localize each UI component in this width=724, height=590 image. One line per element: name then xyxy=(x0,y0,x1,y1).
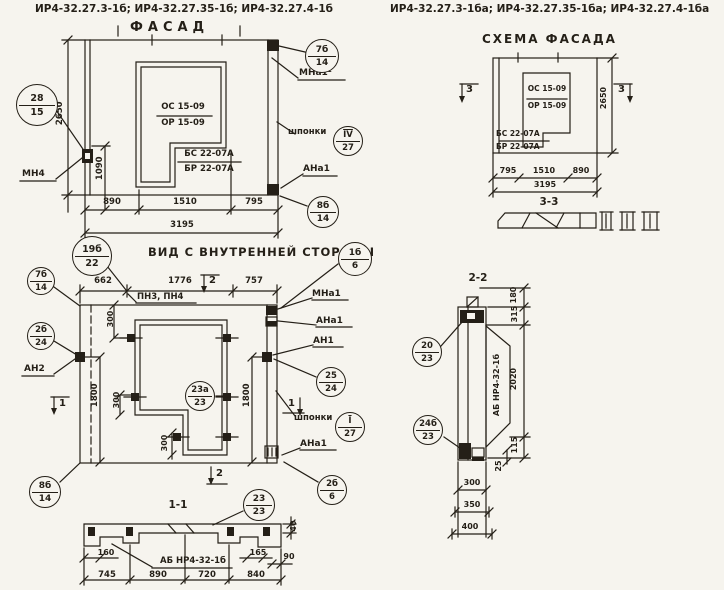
balloon-25-24: 25 24 xyxy=(316,367,346,397)
inner-label-shponki: шпонки xyxy=(294,414,332,423)
scheme-section-mark-right: 3 xyxy=(618,85,625,95)
facade-dim-795: 795 xyxy=(234,198,274,207)
balloon-top: 7б xyxy=(308,45,336,57)
inner-section-mark-1-right: 1 xyxy=(288,399,295,409)
section-1-1-label: АБ НР4-32-1б xyxy=(150,557,236,566)
balloon-bottom: 14 xyxy=(32,493,58,504)
facade-title: ФАСАД xyxy=(130,21,209,34)
section-1-1-title: 1-1 xyxy=(160,500,196,511)
balloon-top: 25 xyxy=(319,371,344,383)
s22-dim-400: 400 xyxy=(453,523,487,531)
balloon-top: 1б xyxy=(341,248,369,260)
facade-window-mark-bottom: ОР 15-09 xyxy=(152,119,214,128)
inner-dim-757: 757 xyxy=(236,277,272,286)
s11-dim-90: 90 xyxy=(278,553,300,561)
balloon-bottom: 23 xyxy=(246,506,272,517)
inner-dim-662: 662 xyxy=(85,277,121,286)
s11-dim-720: 720 xyxy=(192,571,222,580)
scheme-dim-890: 890 xyxy=(566,167,596,175)
scheme-dim-2650: 2650 xyxy=(600,80,608,116)
inner-label-ana1: АНа1 xyxy=(316,317,343,326)
balloon-top: 2б xyxy=(320,479,345,491)
s22-dim-315: 315 xyxy=(511,302,519,326)
scheme-window-mark-top: ОС 15-09 xyxy=(524,85,570,93)
s22-dim-2020: 2020 xyxy=(510,364,518,394)
s11-dim-40: 40 xyxy=(290,516,298,536)
facade-panel-mark-bottom: БР 22-07А xyxy=(176,165,242,174)
balloon-bottom: 14 xyxy=(308,57,336,68)
balloon-bottom: 24 xyxy=(319,383,344,394)
balloon-2b-6: 2б 6 xyxy=(317,475,347,505)
balloon-top: 19б xyxy=(75,244,108,257)
title-right: ИР4-32.27.3-1ба; ИР4-32.27.35-1ба; ИР4-3… xyxy=(390,4,709,15)
balloon-top: 2б xyxy=(30,325,53,337)
facade-panel-mark-top: БС 22-07А xyxy=(176,150,242,159)
balloon-top: 7б xyxy=(30,270,53,282)
scheme-panel-mark-bottom: БР 22-07А xyxy=(496,143,540,151)
inner-dim-1800-left: 1800 xyxy=(91,376,100,414)
balloon-top: 23а xyxy=(188,385,213,397)
inner-dim-300-mid: 300 xyxy=(113,385,121,415)
balloon-1b-6: 1б 6 xyxy=(338,242,372,276)
s22-dim-115: 115 xyxy=(511,433,519,457)
inner-label-an1: АН1 xyxy=(313,337,334,346)
balloon-bottom: 27 xyxy=(336,142,361,153)
inner-label-pn: ПН3, ПН4 xyxy=(137,293,183,302)
inner-label-an2: АН2 xyxy=(24,365,45,374)
balloon-bottom: 23 xyxy=(188,397,213,408)
balloon-top: 28 xyxy=(19,93,54,106)
s22-dim-350: 350 xyxy=(456,501,488,509)
balloon-bottom: 23 xyxy=(416,431,441,442)
facade-dim-1090: 1090 xyxy=(96,148,105,188)
balloon-20-23: 20 23 xyxy=(412,337,442,367)
balloon-8b-14-inner: 8б 14 xyxy=(29,476,61,508)
s11-dim-890: 890 xyxy=(143,571,173,580)
scheme-dim-795: 795 xyxy=(493,167,523,175)
facade-label-mn4: МН4 xyxy=(22,170,45,179)
balloon-top: 8б xyxy=(32,481,58,493)
balloon-19b-22: 19б 22 xyxy=(72,236,112,276)
facade-window-mark-top: ОС 15-09 xyxy=(152,103,214,112)
balloon-top: 24б xyxy=(416,419,441,431)
balloon-i-27: I 27 xyxy=(335,412,365,442)
inner-dim-1776: 1776 xyxy=(158,277,202,286)
balloon-bottom: 6 xyxy=(341,260,369,271)
s11-dim-165: 165 xyxy=(244,549,272,557)
balloon-top: 23 xyxy=(246,494,272,506)
balloon-8b-14-facade: 8б 14 xyxy=(307,196,339,228)
balloon-28-15: 28 15 xyxy=(16,84,58,126)
facade-label-ana1: АНа1 xyxy=(303,165,330,174)
balloon-bottom: 22 xyxy=(75,257,108,269)
balloon-bottom: 14 xyxy=(310,213,336,224)
inner-section-mark-2-bottom: 2 xyxy=(216,469,223,479)
scheme-dim-1510: 1510 xyxy=(527,167,561,175)
section-3-3-title: 3-3 xyxy=(533,197,565,208)
s22-dim-300: 300 xyxy=(458,479,486,487)
s11-dim-160: 160 xyxy=(92,549,120,557)
drawing-linework xyxy=(0,0,724,590)
balloon-top: IV xyxy=(336,130,361,142)
balloon-23a-23: 23а 23 xyxy=(185,381,215,411)
s22-dim-25: 25 xyxy=(495,457,503,475)
s11-dim-745: 745 xyxy=(92,571,122,580)
balloon-bottom: 24 xyxy=(30,337,53,348)
balloon-24b-23: 24б 23 xyxy=(413,415,443,445)
facade-dim-890: 890 xyxy=(92,198,132,207)
inner-dim-1800-right: 1800 xyxy=(243,376,252,414)
s11-dim-840: 840 xyxy=(241,571,271,580)
inner-dim-300-bottom: 300 xyxy=(161,428,169,458)
scheme-title: СХЕМА ФАСАДА xyxy=(482,33,617,45)
facade-dim-1510: 1510 xyxy=(163,198,207,207)
balloon-23-23: 23 23 xyxy=(243,489,275,521)
balloon-top: 20 xyxy=(415,341,440,353)
balloon-7b-14-facade: 7б 14 xyxy=(305,39,339,73)
title-left: ИР4-32.27.3-1б; ИР4-32.27.35-1б; ИР4-32.… xyxy=(35,4,333,15)
balloon-bottom: 27 xyxy=(338,428,363,439)
inner-view-linework xyxy=(22,264,352,485)
section-2-2-title: 2-2 xyxy=(462,273,494,284)
balloon-bottom: 23 xyxy=(415,353,440,364)
inner-dim-300-top: 300 xyxy=(107,304,115,334)
scheme-panel-mark-top: БС 22-07А xyxy=(496,130,540,138)
balloon-top: 8б xyxy=(310,201,336,213)
balloon-bottom: 15 xyxy=(19,106,54,118)
inner-section-mark-2-top: 2 xyxy=(209,276,216,286)
balloon-7b-14-inner: 7б 14 xyxy=(27,267,55,295)
inner-section-mark-1-left: 1 xyxy=(59,399,66,409)
drawing-sheet: ИР4-32.27.3-1б; ИР4-32.27.35-1б; ИР4-32.… xyxy=(0,0,724,590)
balloon-top: I xyxy=(338,416,363,428)
inner-label-mna1: МНа1 xyxy=(312,290,341,299)
facade-label-shponki: шпонки xyxy=(288,128,326,137)
scheme-section-mark-left: 3 xyxy=(466,85,473,95)
balloon-bottom: 6 xyxy=(320,491,345,502)
balloon-2b-24: 2б 24 xyxy=(27,322,55,350)
scheme-window-mark-bottom: ОР 15-09 xyxy=(524,102,570,110)
balloon-iv-27: IV 27 xyxy=(333,126,363,156)
inner-label-ana1b: АНа1 xyxy=(300,440,327,449)
scheme-dim-3195: 3195 xyxy=(527,181,563,189)
balloon-bottom: 14 xyxy=(30,282,53,293)
facade-dim-3195: 3195 xyxy=(160,221,204,230)
section-2-2-label: АБ НР4-32-1б xyxy=(493,343,501,427)
